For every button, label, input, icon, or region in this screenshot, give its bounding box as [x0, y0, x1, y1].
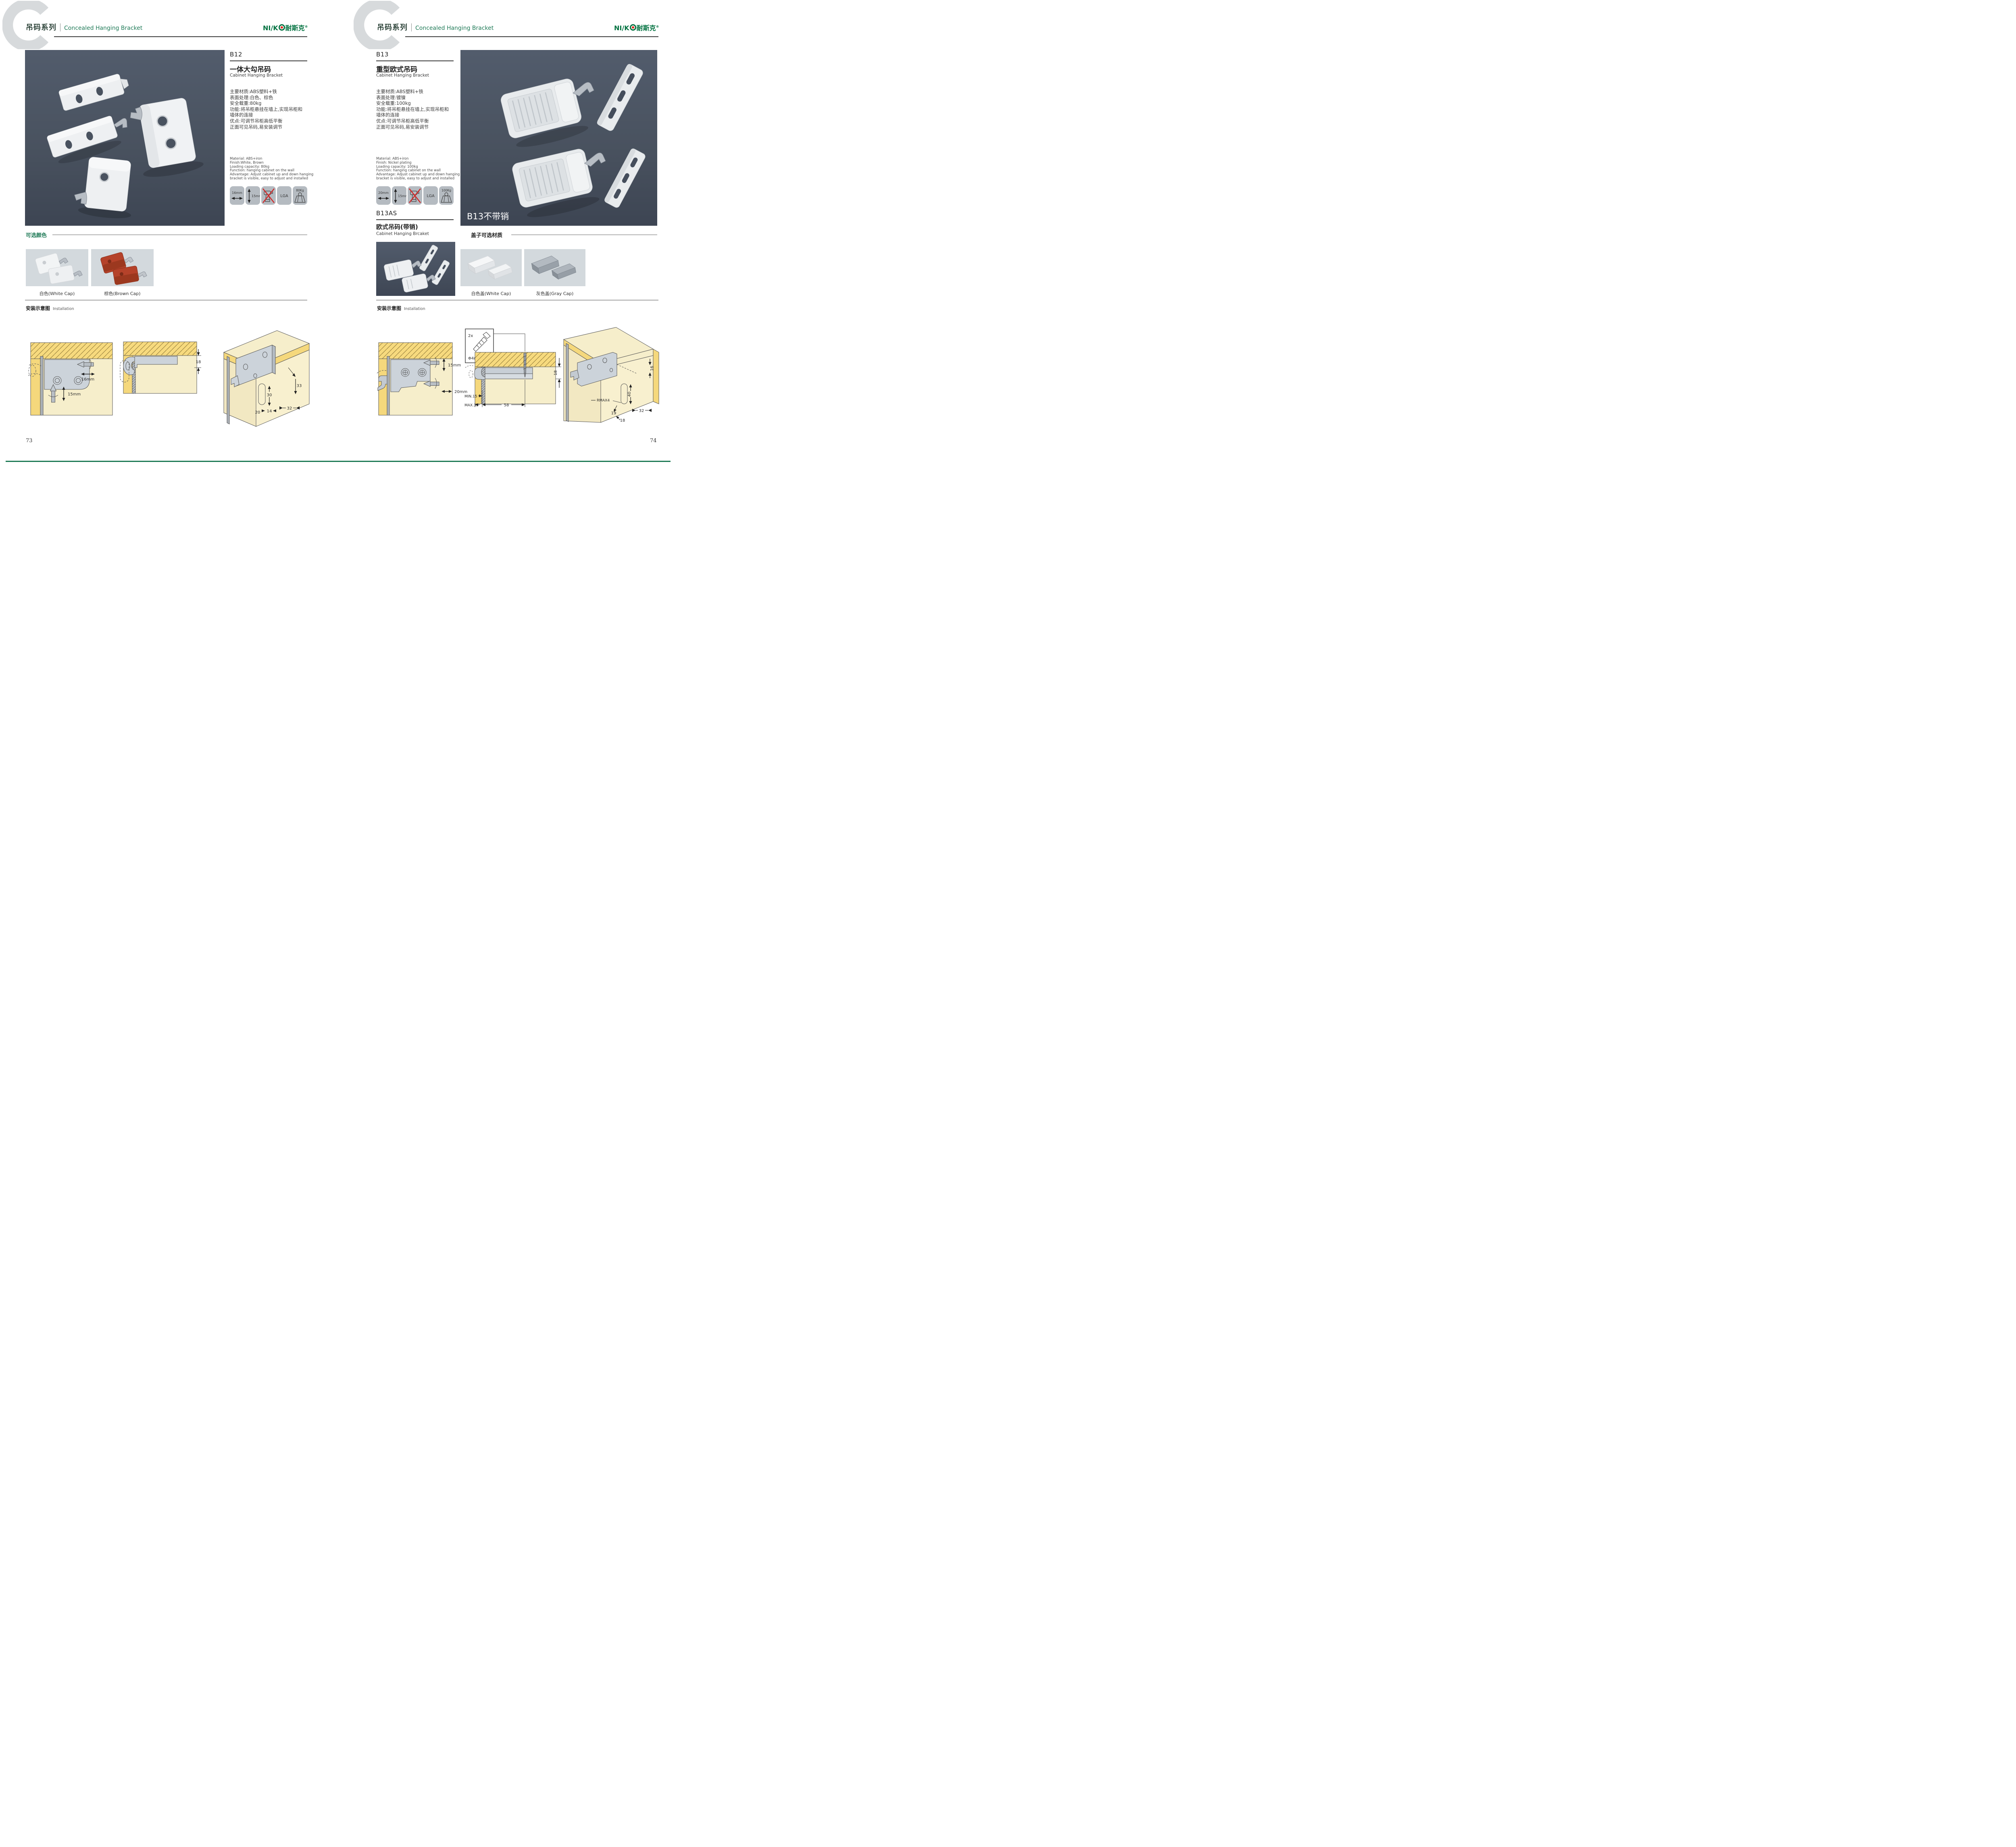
brand-logo-cn: 耐斯克	[637, 24, 656, 32]
svg-text:15mm: 15mm	[252, 194, 260, 198]
dim-label: 32	[287, 406, 292, 411]
dim-label: MAX.35	[464, 404, 478, 408]
load-weight-icon: 80Kg	[293, 186, 307, 205]
icon-tile-width: 16mm	[230, 186, 244, 205]
brand-logo-o-icon	[279, 24, 285, 31]
color-option-white	[26, 249, 88, 286]
white-bracket-illustration	[26, 249, 88, 286]
product-photo-b13: B13不带销	[460, 50, 657, 226]
caps-heading: 盖子可选材质	[471, 231, 502, 239]
spec-list-cn: 主要材质:ABS塑料+铁 表面处理:白色、棕色 安全载重:80kg 功能:将吊柜…	[230, 89, 302, 130]
dim-label: 32	[639, 409, 644, 413]
colors-heading: 可选颜色	[26, 231, 47, 239]
dim-label: 15mm	[448, 363, 461, 368]
icon-tile-no-drill	[261, 186, 276, 205]
model-code: B12	[230, 51, 242, 58]
no-drill-icon	[261, 186, 276, 205]
spec-line: 墙体的连接	[230, 112, 302, 118]
height-arrow-icon: 15mm	[392, 186, 406, 205]
product-photo-b12	[25, 50, 225, 226]
icon-tile-height: 15mm	[246, 186, 260, 205]
header-rule	[54, 36, 307, 37]
dim-label: 16mm	[81, 377, 94, 382]
cap-option-gray	[524, 249, 585, 286]
brand-logo-latin: NI/K	[263, 24, 278, 32]
dim-label: 33	[297, 384, 302, 388]
spec-line: 表面处理:镀镍	[376, 95, 449, 101]
registered-mark: ®	[305, 25, 308, 29]
dim-label: 18	[196, 360, 201, 364]
brand-logo: NI/K耐斯克®	[263, 23, 308, 32]
caps-rule	[511, 235, 657, 235]
load-weight-icon: 100Kg	[439, 186, 454, 205]
spec-line: bracket is visible, easy to adjust and i…	[376, 177, 460, 181]
section-divider	[25, 300, 307, 300]
gray-cap-illustration	[524, 249, 585, 286]
dim-label: 58	[504, 403, 509, 408]
spec-line: 优点:可调节吊柜高低平衡	[230, 118, 302, 124]
install-diagram-section: 2x Φ4mm 18 MIN.15 MAX.35 58	[464, 327, 562, 413]
series-title-en: Concealed Hanging Bracket	[64, 25, 142, 31]
series-title-en: Concealed Hanging Bracket	[415, 25, 494, 31]
model-code: B13	[376, 51, 389, 58]
page-number-left: 73	[26, 438, 33, 444]
install-heading-cn: 安装示意图	[377, 306, 401, 311]
install-diagram-front: 15mm 20mm	[376, 339, 469, 417]
icon-tile-lga: LGA	[277, 186, 292, 205]
dim-label: RMAX4	[597, 399, 610, 403]
dim-label: MIN.15	[464, 395, 477, 399]
product-name-en: Cabinet Hanging Brcaket	[376, 231, 429, 236]
width-arrow-icon: 16mm	[230, 186, 244, 205]
photo-caption: B13不带销	[467, 212, 509, 221]
icon-tile-lga: LGA	[423, 186, 438, 205]
install-heading-en: Installation	[53, 307, 74, 311]
spec-line: 正面可见吊码,易安装调节	[230, 124, 302, 130]
svg-text:80Kg: 80Kg	[296, 189, 304, 192]
svg-text:15mm: 15mm	[398, 194, 406, 198]
dim-label: 19	[611, 411, 616, 416]
svg-text:20mm: 20mm	[378, 191, 389, 195]
series-title-cn: 吊码系列	[377, 23, 408, 32]
product-name-en: Cabinet Hanging Bracket	[230, 73, 283, 78]
model-rule	[376, 219, 454, 220]
spec-line: 主要材质:ABS塑料+铁	[230, 89, 302, 95]
install-diagram-perspective: 30 20 14 32 33	[204, 327, 310, 428]
icon-tile-load: 100Kg	[439, 186, 454, 205]
svg-text:16mm: 16mm	[232, 191, 242, 195]
catalog-spread: 吊码系列Concealed Hanging Bracket NI/K耐斯克®	[0, 0, 676, 462]
cap-option-label: 灰色盖(Gray Cap)	[524, 290, 585, 297]
icon-tile-load: 80Kg	[293, 186, 307, 205]
model-code: B13AS	[376, 210, 397, 217]
page-header-left: 吊码系列Concealed Hanging Bracket	[26, 22, 142, 32]
brand-logo-o-icon	[630, 24, 636, 31]
header-divider-bar	[60, 23, 60, 31]
model-rule	[376, 60, 454, 61]
brand-logo-cn: 耐斯克	[285, 24, 305, 32]
series-title-cn: 吊码系列	[26, 23, 56, 32]
dim-label: 20	[255, 410, 260, 415]
install-diagram-perspective: 16 40 RMAX4 19 32 18	[557, 325, 661, 426]
cap-option-white	[460, 249, 522, 286]
footer-accent-rule	[6, 461, 671, 462]
icon-tile-no-drill	[408, 186, 422, 205]
colors-rule	[52, 235, 307, 235]
install-heading-cn: 安装示意图	[26, 306, 50, 311]
color-option-label: 白色(White Cap)	[26, 290, 88, 297]
svg-text:100Kg: 100Kg	[442, 189, 451, 192]
spec-line: 安全载重:80kg	[230, 100, 302, 106]
spec-line: 功能:将吊柜悬挂在墙上,实现吊柜和	[230, 106, 302, 112]
product-name-cn: 欧式吊码(带销)	[376, 223, 418, 231]
lga-cert-label: LGA	[427, 194, 435, 198]
icon-tile-height: 15mm	[392, 186, 406, 205]
dim-label: 15mm	[68, 392, 81, 397]
width-arrow-icon: 20mm	[376, 186, 391, 205]
spec-list-en: Material: ABS+iron Finish: Nickel platin…	[376, 157, 460, 181]
dim-label: 18	[620, 418, 625, 423]
brand-logo-latin: NI/K	[614, 24, 629, 32]
product-photo-b13as	[376, 242, 455, 296]
product-name-cn: 重型欧式吊码	[376, 64, 417, 74]
height-arrow-icon: 15mm	[246, 186, 260, 205]
install-heading-en: Installation	[404, 307, 425, 311]
spec-line: 主要材质:ABS塑料+铁	[376, 89, 449, 95]
install-diagram-section: 18	[119, 339, 202, 398]
install-heading: 安装示意图Installation	[26, 305, 74, 312]
header-rule	[405, 36, 658, 37]
header-divider-bar	[411, 23, 412, 31]
spec-line: 正面可见吊码,易安装调节	[376, 124, 449, 130]
icon-tile-width: 20mm	[376, 186, 391, 205]
spec-line: 功能:将吊柜悬挂在墙上,实现吊柜和	[376, 106, 449, 112]
spec-list-en: Material: ABS+iron Finish:White, Brown L…	[230, 157, 313, 181]
brand-logo: NI/K耐斯克®	[614, 23, 659, 32]
color-option-label: 棕色(Brown Cap)	[91, 290, 154, 297]
spec-line: 墙体的连接	[376, 112, 449, 118]
brown-bracket-illustration	[91, 249, 154, 286]
install-diagram-front: 16mm 15mm	[28, 339, 115, 417]
product-name-cn: 一体大勾吊码	[230, 64, 271, 74]
page-header-right: 吊码系列Concealed Hanging Bracket	[377, 22, 494, 32]
spec-line: bracket is visible, easy to adjust and i…	[230, 177, 313, 181]
section-divider	[376, 300, 658, 300]
model-rule	[230, 60, 307, 61]
spec-line: 安全载重:100kg	[376, 100, 449, 106]
dim-label: 16	[650, 366, 654, 371]
color-option-brown	[91, 249, 154, 286]
dim-label: 40	[627, 392, 632, 397]
spec-list-cn: 主要材质:ABS塑料+铁 表面处理:镀镍 安全载重:100kg 功能:将吊柜悬挂…	[376, 89, 449, 130]
no-drill-icon	[408, 186, 422, 205]
dim-label: 30	[267, 393, 272, 397]
page-number-right: 74	[650, 438, 657, 444]
product-name-en: Cabinet Hanging Bracket	[376, 73, 429, 78]
lga-cert-label: LGA	[280, 194, 288, 198]
spec-line: 优点:可调节吊柜高低平衡	[376, 118, 449, 124]
install-heading: 安装示意图Installation	[377, 305, 425, 312]
registered-mark: ®	[656, 25, 659, 29]
spec-line: 表面处理:白色、棕色	[230, 95, 302, 101]
screw-count-label: 2x	[468, 334, 473, 338]
cap-option-label: 白色盖(White Cap)	[460, 290, 522, 297]
dim-label: 14	[267, 409, 272, 414]
white-cap-illustration	[460, 249, 522, 286]
